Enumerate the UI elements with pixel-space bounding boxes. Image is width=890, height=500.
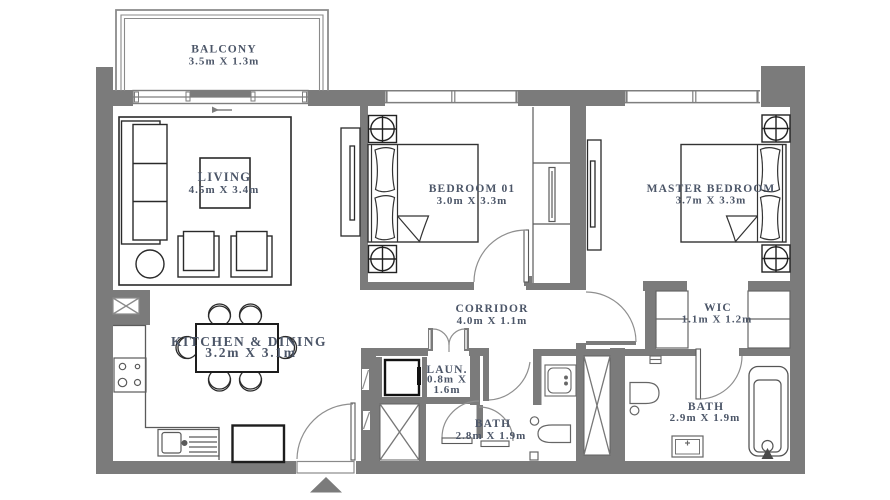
svg-text:3.2m X 3.1m: 3.2m X 3.1m — [205, 345, 296, 360]
svg-text:BATH: BATH — [475, 418, 511, 430]
svg-text:3.0m X 3.3m: 3.0m X 3.3m — [437, 195, 508, 207]
svg-text:4.5m X 3.4m: 4.5m X 3.4m — [189, 184, 260, 196]
svg-text:CORRIDOR: CORRIDOR — [455, 303, 528, 315]
svg-text:2.9m X 1.9m: 2.9m X 1.9m — [670, 412, 741, 424]
svg-text:2.8m X 1.9m: 2.8m X 1.9m — [456, 430, 527, 442]
svg-text:4.0m X 1.1m: 4.0m X 1.1m — [457, 315, 528, 327]
svg-text:1.1m X 1.2m: 1.1m X 1.2m — [682, 313, 753, 325]
svg-text:WIC: WIC — [704, 302, 732, 314]
svg-text:3.5m X 1.3m: 3.5m X 1.3m — [189, 56, 260, 68]
svg-text:BALCONY: BALCONY — [191, 44, 257, 56]
svg-text:3.7m X 3.3m: 3.7m X 3.3m — [676, 195, 747, 207]
svg-text:MASTER BEDROOM: MASTER BEDROOM — [647, 183, 776, 195]
svg-text:1.6m: 1.6m — [433, 384, 460, 396]
svg-text:BEDROOM 01: BEDROOM 01 — [429, 183, 516, 195]
svg-text:LIVING: LIVING — [198, 170, 252, 184]
